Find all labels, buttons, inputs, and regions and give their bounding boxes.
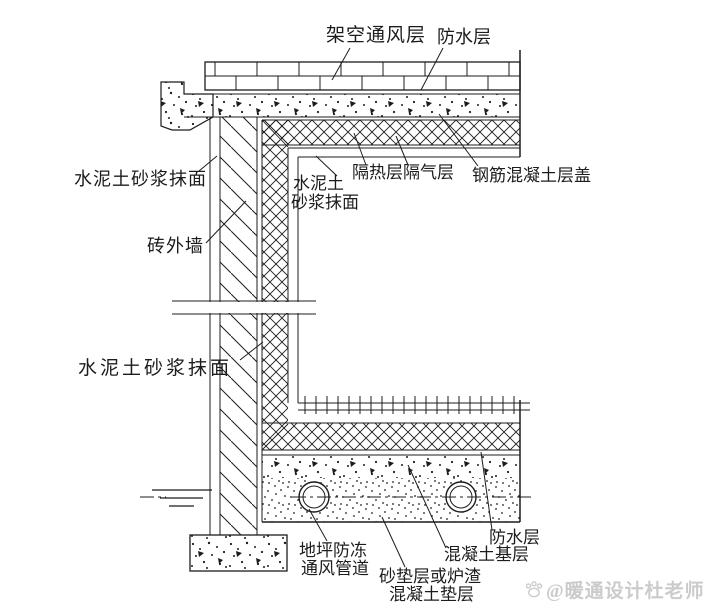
label-waterproof-layer-bottom: 防水层	[489, 529, 540, 547]
label-concrete-base: 混凝土基层	[444, 546, 529, 564]
label-frost-pipe-line2: 通风管道	[301, 560, 369, 578]
label-brick-wall: 砖外墙	[147, 237, 204, 256]
foundation-footing	[190, 535, 287, 571]
grade-lines	[152, 490, 212, 506]
label-cushion-line1: 砂垫层或炉渣	[379, 568, 481, 586]
wall-break-lines	[172, 301, 316, 314]
label-insulation-vapor-layer: 隔热层隔气层	[352, 164, 454, 182]
concrete-base-layer	[262, 455, 520, 478]
roof-assembly	[161, 50, 520, 157]
label-frost-pipe-line1: 地坪防冻	[299, 542, 367, 560]
floor-insulation-layer	[262, 423, 520, 450]
section-drawing	[0, 0, 715, 612]
label-rc-roof-slab: 钢筋混凝土层盖	[472, 167, 591, 185]
roof-concrete-slab	[205, 94, 520, 117]
paw-icon	[524, 580, 544, 600]
watermark: @暖通设计杜老师	[524, 576, 705, 603]
roof-brick-vent-layer	[205, 62, 520, 90]
label-roof-ventilation-layer: 架空通风层	[326, 26, 426, 46]
label-waterproof-layer-top: 防水层	[437, 28, 491, 47]
ceiling-plaster-lines	[262, 145, 520, 157]
leader-cushion	[382, 517, 405, 567]
wall-insulation-strip	[262, 120, 288, 423]
label-exterior-plaster-lower: 水泥土砂浆抹面	[78, 359, 232, 379]
break-gap	[172, 302, 316, 313]
brick-wall-hatch	[220, 117, 257, 535]
construction-detail-figure: 架空通风层 防水层 隔热层隔气层 钢筋混凝土层盖 水泥土 砂浆抹面 水泥土砂浆抹…	[0, 0, 715, 612]
roof-insulation-layer	[262, 120, 520, 145]
label-interior-plaster-line1: 水泥土	[293, 175, 344, 193]
label-exterior-plaster-upper: 水泥土砂浆抹面	[74, 170, 207, 189]
label-interior-plaster-line2: 砂浆抹面	[291, 194, 359, 212]
floor-finish-ticks	[300, 396, 518, 414]
label-cushion-line2: 混凝土垫层	[389, 586, 474, 604]
watermark-text: @暖通设计杜老师	[546, 576, 705, 603]
leader-interior-plaster	[316, 156, 337, 176]
